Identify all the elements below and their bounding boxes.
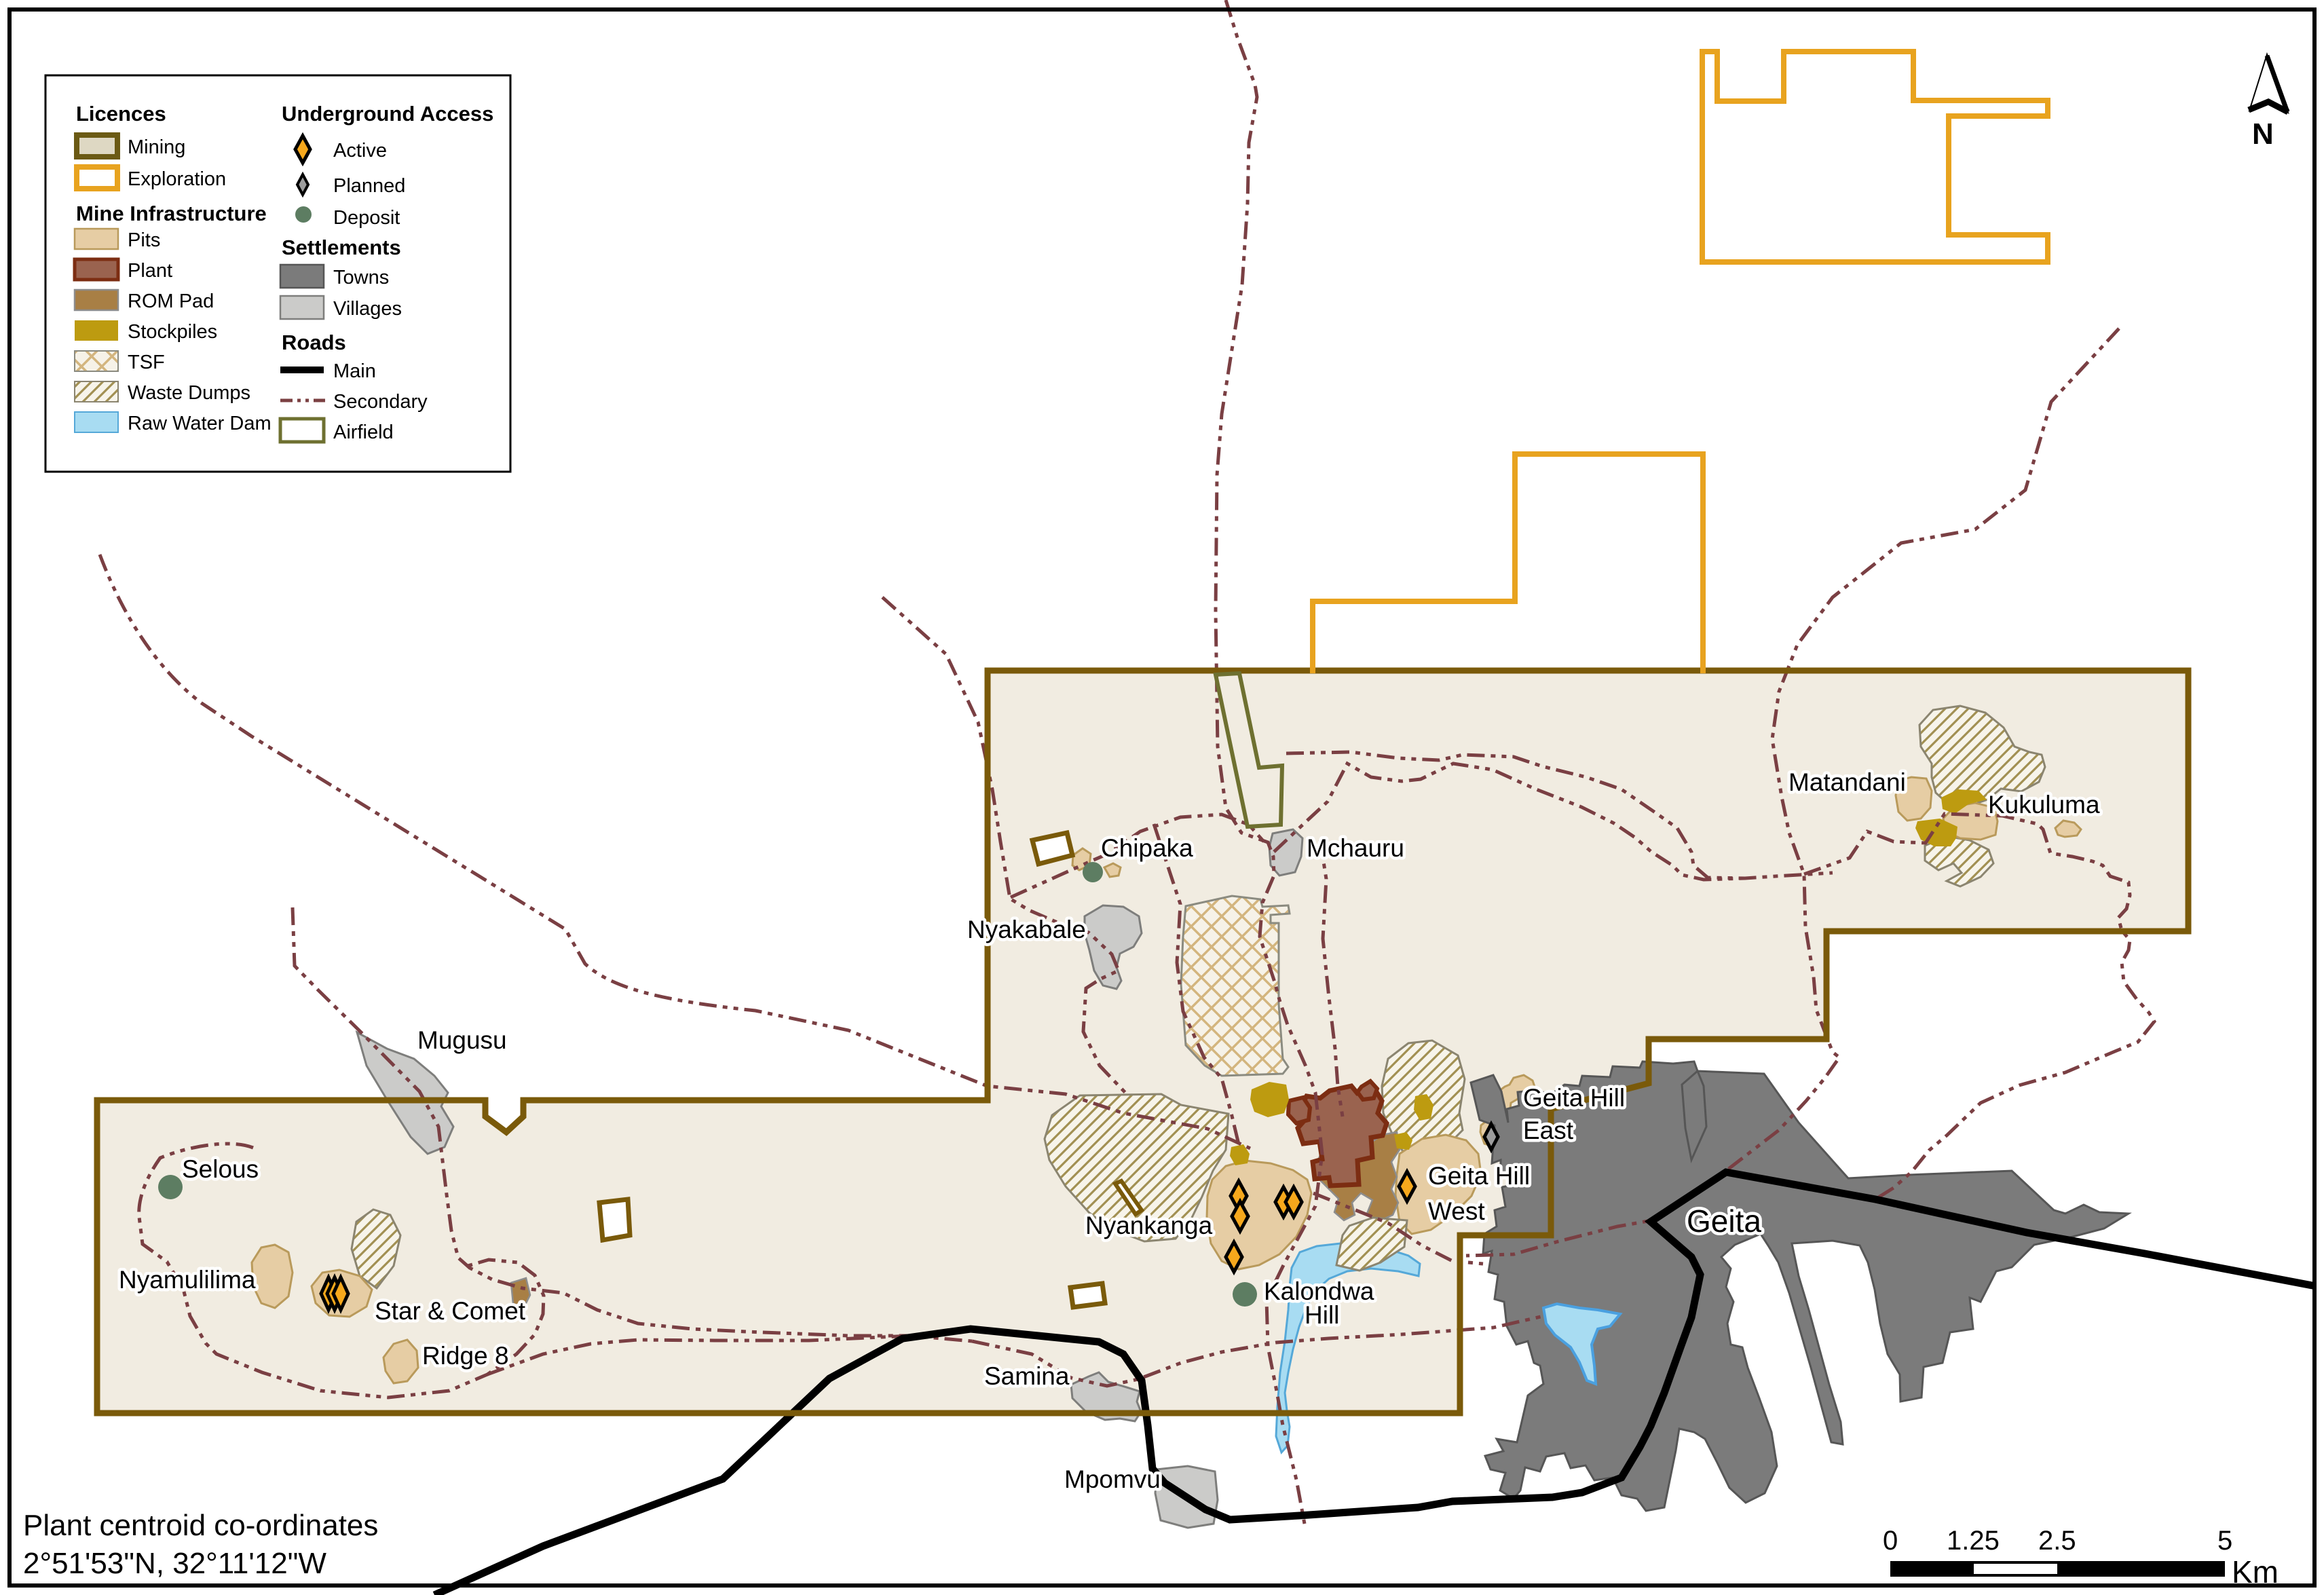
svg-text:Kukuluma: Kukuluma (1988, 791, 2100, 819)
svg-text:Hill: Hill (1305, 1301, 1339, 1329)
svg-text:West: West (1428, 1197, 1485, 1225)
svg-text:2.5: 2.5 (2038, 1526, 2076, 1556)
svg-text:Mining: Mining (128, 136, 185, 158)
svg-text:Mchauru: Mchauru (1307, 834, 1404, 862)
svg-text:2°51'53"N, 32°11'12"W: 2°51'53"N, 32°11'12"W (23, 1547, 326, 1580)
svg-text:Villages: Villages (333, 298, 402, 320)
svg-text:Mugusu: Mugusu (417, 1026, 507, 1054)
svg-text:TSF: TSF (128, 352, 165, 373)
svg-text:0: 0 (1883, 1526, 1898, 1556)
svg-text:5: 5 (2217, 1526, 2232, 1556)
svg-text:Nyamulilima: Nyamulilima (119, 1266, 256, 1294)
svg-text:Matandani: Matandani (1788, 768, 1906, 796)
svg-text:ROM Pad: ROM Pad (128, 290, 214, 312)
svg-text:Deposit: Deposit (333, 207, 400, 229)
svg-text:1.25: 1.25 (1947, 1526, 2000, 1556)
svg-text:Chipaka: Chipaka (1101, 834, 1193, 862)
svg-text:Roads: Roads (282, 331, 346, 354)
svg-text:Ridge 8: Ridge 8 (422, 1342, 509, 1370)
svg-text:Main: Main (333, 360, 376, 382)
svg-text:Settlements: Settlements (282, 236, 401, 259)
svg-text:Selous: Selous (182, 1155, 259, 1183)
svg-text:Mpomvu: Mpomvu (1064, 1465, 1161, 1493)
svg-text:Waste Dumps: Waste Dumps (128, 382, 250, 404)
svg-text:Geita Hill: Geita Hill (1428, 1162, 1530, 1190)
svg-text:Samina: Samina (984, 1362, 1070, 1390)
svg-text:Plant centroid co-ordinates: Plant centroid co-ordinates (23, 1509, 378, 1542)
svg-text:Plant: Plant (128, 260, 172, 282)
svg-text:Nyankanga: Nyankanga (1085, 1212, 1213, 1239)
svg-text:Pits: Pits (128, 229, 160, 251)
svg-text:Raw Water Dam: Raw Water Dam (128, 413, 271, 434)
svg-text:Nyakabale: Nyakabale (967, 916, 1086, 943)
svg-text:Exploration: Exploration (128, 168, 226, 190)
svg-text:Active: Active (333, 140, 387, 162)
svg-text:Km: Km (2232, 1554, 2279, 1590)
svg-text:Towns: Towns (333, 267, 389, 288)
svg-text:Secondary: Secondary (333, 391, 428, 413)
svg-text:Geita Hill: Geita Hill (1523, 1084, 1625, 1112)
svg-text:Airfield: Airfield (333, 421, 394, 443)
svg-text:Planned: Planned (333, 175, 405, 197)
svg-text:Licences: Licences (76, 102, 166, 126)
svg-text:Stockpiles: Stockpiles (128, 321, 217, 343)
svg-text:Star & Comet: Star & Comet (375, 1297, 526, 1325)
svg-text:Underground Access: Underground Access (282, 102, 493, 126)
svg-text:East: East (1523, 1116, 1574, 1144)
svg-text:N: N (2252, 117, 2274, 151)
svg-text:Geita: Geita (1687, 1203, 1761, 1239)
svg-text:Mine Infrastructure: Mine Infrastructure (76, 202, 267, 225)
